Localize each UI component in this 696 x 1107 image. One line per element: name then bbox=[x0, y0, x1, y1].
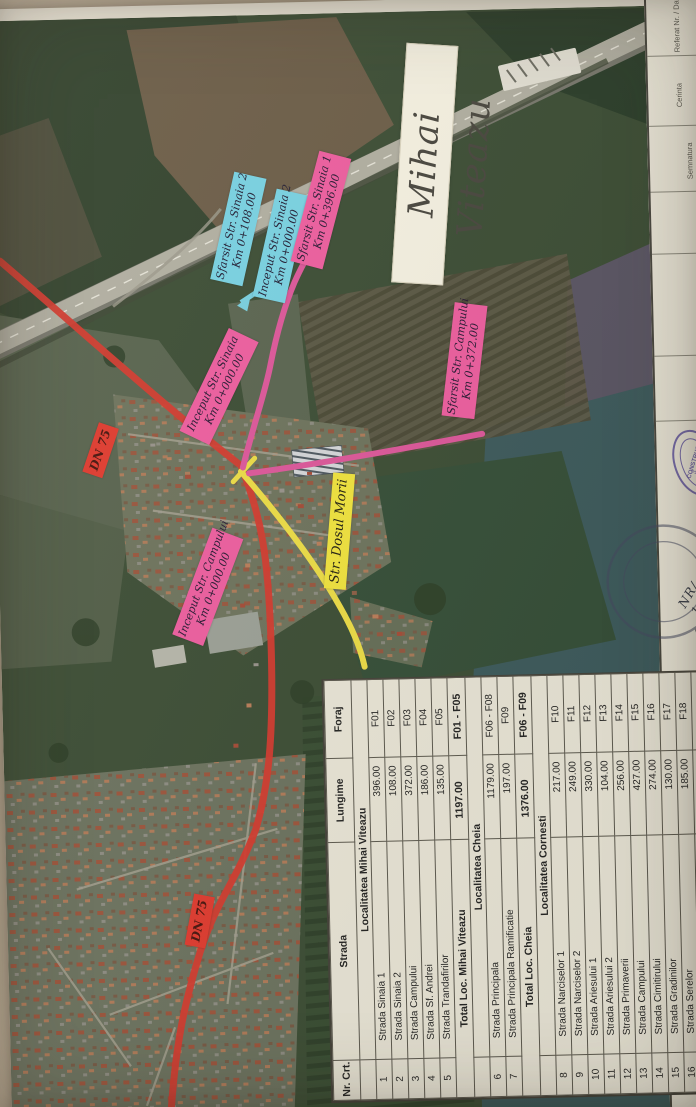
title-block-divider bbox=[656, 419, 696, 422]
cell: 2 bbox=[392, 1059, 409, 1099]
photographed-plan-scene: Referat Nr. / Data Cerinta Semnatura Num… bbox=[0, 0, 696, 1107]
total-foraj: F10 - F18 bbox=[691, 672, 696, 750]
street-length-table: Nr. Crt. Strada Lungime Foraj Localitate… bbox=[323, 672, 696, 1101]
cell: F14 bbox=[611, 674, 629, 752]
field-semnatura: Semnatura bbox=[685, 142, 695, 179]
cell: 10 bbox=[588, 1054, 605, 1094]
total-foraj: F01 - F05 bbox=[447, 677, 467, 755]
plan-paper: Referat Nr. / Data Cerinta Semnatura Num… bbox=[0, 0, 696, 1107]
cell: 9 bbox=[572, 1055, 589, 1095]
cell: F05 bbox=[431, 678, 449, 756]
cell: F10 bbox=[547, 675, 565, 753]
cell: 274.00 bbox=[645, 751, 663, 835]
cell: F18 bbox=[675, 672, 693, 750]
cell: 372.00 bbox=[401, 756, 419, 840]
cell: 108.00 bbox=[385, 757, 403, 841]
cell: 4 bbox=[424, 1058, 441, 1098]
cell: 197.00 bbox=[499, 754, 517, 838]
cell: 427.00 bbox=[629, 751, 647, 835]
cell: F16 bbox=[643, 673, 661, 751]
cell: F13 bbox=[595, 674, 613, 752]
empty-cell bbox=[474, 1057, 491, 1097]
header-nr: Nr. Crt. bbox=[333, 1060, 361, 1101]
cell: 6 bbox=[490, 1056, 507, 1096]
title-block-divider bbox=[650, 190, 696, 193]
header-lungime: Lungime bbox=[326, 758, 355, 843]
title-block-divider bbox=[649, 124, 696, 127]
cell: 186.00 bbox=[417, 756, 435, 840]
cell: 135.00 bbox=[433, 756, 451, 840]
cell: 1179.00 bbox=[483, 755, 501, 839]
cell: 249.00 bbox=[565, 753, 583, 837]
cell: F09 bbox=[497, 676, 515, 754]
total-value: 1376.00 bbox=[515, 754, 535, 838]
cell: F06 - F08 bbox=[481, 677, 499, 755]
total-value: 1197.00 bbox=[449, 755, 469, 839]
cell: 15 bbox=[668, 1052, 685, 1092]
cell: 185.00 bbox=[677, 750, 695, 834]
cell: 104.00 bbox=[597, 752, 615, 836]
cell: 256.00 bbox=[613, 751, 631, 835]
cell: 8 bbox=[556, 1055, 573, 1095]
empty-cell bbox=[540, 1055, 557, 1095]
cell: 5 bbox=[440, 1058, 457, 1098]
title-block-divider bbox=[647, 54, 696, 57]
cell: 396.00 bbox=[369, 757, 387, 841]
cell: 1 bbox=[376, 1059, 393, 1099]
title-block-divider bbox=[654, 354, 696, 357]
cell: 330.00 bbox=[581, 752, 599, 836]
cell: 12 bbox=[620, 1053, 637, 1093]
cell: F17 bbox=[659, 672, 677, 750]
cell: 11 bbox=[604, 1054, 621, 1094]
cell: F03 bbox=[399, 678, 417, 756]
header-foraj: Foraj bbox=[324, 680, 353, 759]
cell: 13 bbox=[636, 1053, 653, 1093]
cell: F15 bbox=[627, 673, 645, 751]
cell: F02 bbox=[383, 679, 401, 757]
title-block-divider bbox=[652, 252, 696, 255]
cell: 16 bbox=[684, 1052, 696, 1092]
cell: F01 bbox=[367, 679, 385, 757]
cell: 130.00 bbox=[661, 750, 679, 834]
field-referat: Referat Nr. / Data bbox=[671, 0, 681, 52]
cell: 217.00 bbox=[549, 753, 567, 837]
total-foraj: F06 - F09 bbox=[513, 676, 533, 754]
cell: F12 bbox=[579, 674, 597, 752]
field-cerinta: Cerinta bbox=[674, 83, 684, 107]
cell: 3 bbox=[408, 1058, 425, 1098]
empty-cell bbox=[360, 1060, 377, 1100]
cell: 7 bbox=[506, 1056, 523, 1096]
cell: F11 bbox=[563, 675, 581, 753]
cell: 14 bbox=[652, 1053, 669, 1093]
cell: F04 bbox=[415, 678, 433, 756]
